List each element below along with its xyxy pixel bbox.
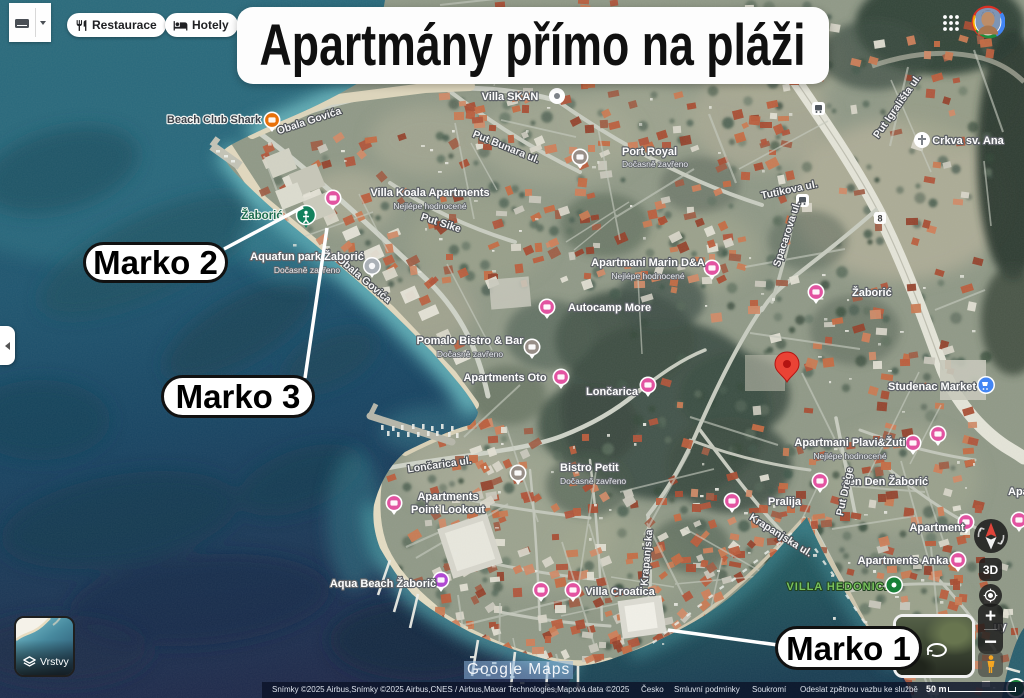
svg-text:Nejlépe hodnocené: Nejlépe hodnocené <box>611 271 685 281</box>
svg-text:Apartmani Plavi&Žuti: Apartmani Plavi&Žuti <box>794 436 905 449</box>
svg-text:Apartments: Apartments <box>417 491 478 503</box>
svg-text:Aqua Beach Žaborič: Aqua Beach Žaborič <box>330 577 436 590</box>
svg-text:Point Lookout: Point Lookout <box>411 504 485 516</box>
svg-text:Apartment: Apartment <box>909 522 964 534</box>
svg-text:Bistro Petit: Bistro Petit <box>560 462 619 474</box>
svg-text:Crkva sv. Ana: Crkva sv. Ana <box>932 135 1004 147</box>
svg-text:Studenac Market: Studenac Market <box>888 381 976 393</box>
svg-text:Apartmani Marin D&A: Apartmani Marin D&A <box>591 257 705 269</box>
svg-text:Žaborić: Žaborić <box>852 286 892 299</box>
svg-text:Lončarica: Lončarica <box>586 386 639 398</box>
svg-text:Autocamp More: Autocamp More <box>568 302 651 314</box>
svg-text:Dočasně zavřeno: Dočasně zavřeno <box>437 349 503 359</box>
svg-text:Nejlépe hodnocené: Nejlépe hodnocené <box>393 201 467 211</box>
svg-text:Dočasně zavřeno: Dočasně zavřeno <box>622 159 688 169</box>
svg-text:Villa SKAN: Villa SKAN <box>482 91 539 103</box>
svg-text:VILLA HEDONICA: VILLA HEDONICA <box>786 581 893 593</box>
svg-text:Villa Koala Apartments: Villa Koala Apartments <box>370 187 489 199</box>
svg-text:Apar: Apar <box>1008 486 1024 498</box>
svg-text:Pomalo Bistro & Bar: Pomalo Bistro & Bar <box>417 335 525 347</box>
svg-text:Port Royal: Port Royal <box>622 146 677 158</box>
svg-text:Nejlépe hodnocené: Nejlépe hodnocené <box>813 451 887 461</box>
svg-text:Zen Den Žaborić: Zen Den Žaborić <box>842 475 928 488</box>
svg-text:Beach Club Shark: Beach Club Shark <box>167 114 262 126</box>
svg-text:Aquafun park Žaborić: Aquafun park Žaborić <box>250 250 364 263</box>
svg-text:Villa Croatica: Villa Croatica <box>585 586 655 598</box>
svg-text:Pralija: Pralija <box>768 496 802 508</box>
svg-text:Apartments Oto: Apartments Oto <box>463 372 546 384</box>
svg-text:Apartments Anka: Apartments Anka <box>858 555 950 567</box>
svg-text:Dočasně zavřeno: Dočasně zavřeno <box>274 265 340 275</box>
svg-text:Dočasně zavřeno: Dočasně zavřeno <box>560 476 626 486</box>
